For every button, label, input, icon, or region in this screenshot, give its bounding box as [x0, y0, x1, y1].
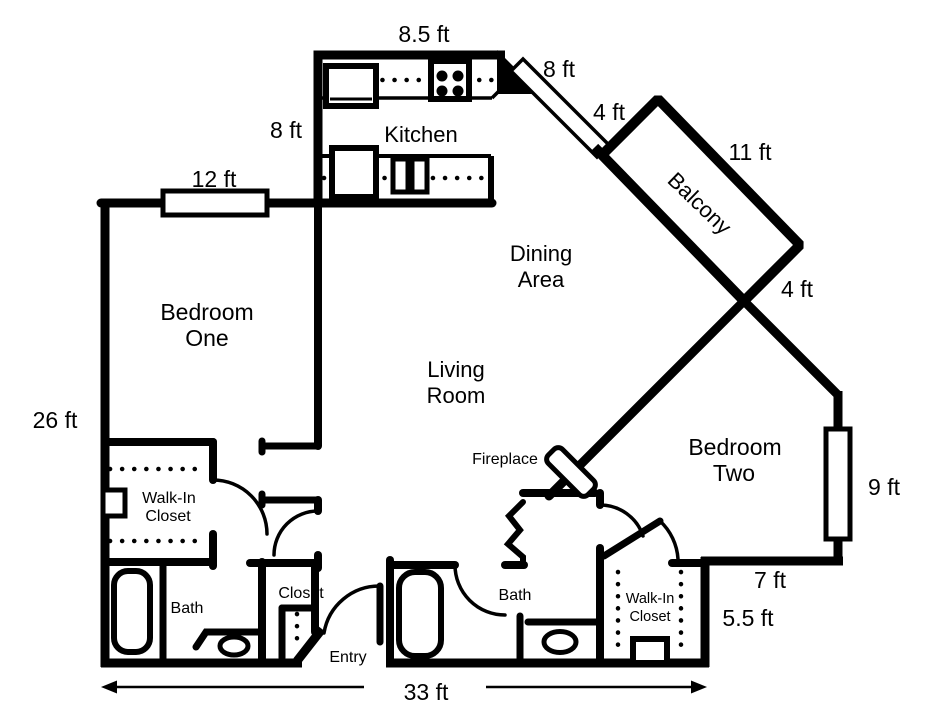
- room-label-living-2: Room: [427, 383, 486, 408]
- dim-south-wall: 33 ft: [404, 679, 449, 705]
- wic-left-door-arc: [213, 480, 267, 534]
- toilet-icon: [220, 637, 248, 655]
- stove-burner-icon: [437, 71, 448, 82]
- label-bath-main: Bath: [499, 587, 532, 604]
- room-label-kitchen: Kitchen: [384, 122, 457, 147]
- room-label-bedroom-one-2: One: [185, 325, 228, 351]
- stove-burner-icon: [437, 86, 448, 97]
- room-label-living-1: Living: [427, 357, 484, 382]
- bedroom-two-door-arc: [600, 505, 643, 536]
- entry-door-arc: [324, 586, 380, 633]
- floor-plan-canvas: 8.5 ft 8 ft 4 ft 11 ft Balcony 4 ft 8 ft…: [0, 0, 938, 718]
- room-label-dining-1: Dining: [510, 241, 572, 266]
- dim-closet-east-wall: 5.5 ft: [722, 605, 774, 631]
- dim-bedroom-two-window: 9 ft: [868, 474, 901, 500]
- room-label-bedroom-two-2: Two: [713, 460, 755, 486]
- toilet-icon: [544, 632, 576, 653]
- sink-basin-icon: [393, 159, 408, 192]
- room-label-dining-2: Area: [518, 267, 565, 292]
- wic-right-drawer-box: [633, 639, 667, 663]
- label-wic-left-1: Walk-In: [142, 490, 196, 507]
- room-label-bedroom-two-1: Bedroom: [688, 434, 781, 460]
- floor-plan: 8.5 ft 8 ft 4 ft 11 ft Balcony 4 ft 8 ft…: [0, 0, 938, 718]
- label-fireplace: Fireplace: [472, 451, 538, 468]
- dim-bedroom-one-window: 12 ft: [192, 166, 237, 192]
- wic-right-door-leaf: [604, 521, 660, 556]
- label-wic-right-1: Walk-In: [626, 591, 675, 607]
- wic-left-shelf-box: [103, 490, 125, 516]
- label-bath-left: Bath: [171, 600, 204, 617]
- wall-diagonal-east: [744, 301, 838, 395]
- fireplace-side-wall: [508, 502, 523, 565]
- wic-right-door-arc: [660, 521, 678, 559]
- bath-main-door-arc: [455, 565, 505, 615]
- dim-balcony-side: 11 ft: [728, 139, 772, 165]
- dim-balcony-end-top: 4 ft: [593, 99, 626, 125]
- room-label-bedroom-one-1: Bedroom: [160, 299, 253, 325]
- bedroom-one-door-arc: [274, 511, 318, 555]
- dim-balcony-end-bottom: 4 ft: [781, 276, 814, 302]
- dim-balcony-door: 8 ft: [543, 56, 576, 82]
- dishwasher-icon: [332, 148, 376, 197]
- bedroom-one-window: [163, 191, 267, 215]
- arrowhead-left-icon: [101, 681, 117, 694]
- label-wic-left-2: Closet: [145, 508, 191, 525]
- stove-burner-icon: [453, 71, 464, 82]
- label-entry: Entry: [329, 649, 366, 666]
- dim-kitchen-top: 8.5 ft: [398, 21, 450, 47]
- bathtub-icon: [114, 571, 150, 652]
- dim-bedroom-two-south: 7 ft: [754, 567, 787, 593]
- dim-west-wall: 26 ft: [33, 407, 78, 433]
- arrowhead-right-icon: [691, 681, 707, 694]
- stove-icon: [431, 61, 469, 99]
- bathtub-icon: [399, 572, 441, 656]
- dim-kitchen-west: 8 ft: [270, 117, 303, 143]
- sink-basin-icon: [412, 159, 427, 192]
- label-entry-closet: Closet: [278, 585, 324, 602]
- stove-burner-icon: [453, 86, 464, 97]
- bedroom-two-window: [826, 429, 850, 539]
- label-wic-right-2: Closet: [629, 609, 670, 625]
